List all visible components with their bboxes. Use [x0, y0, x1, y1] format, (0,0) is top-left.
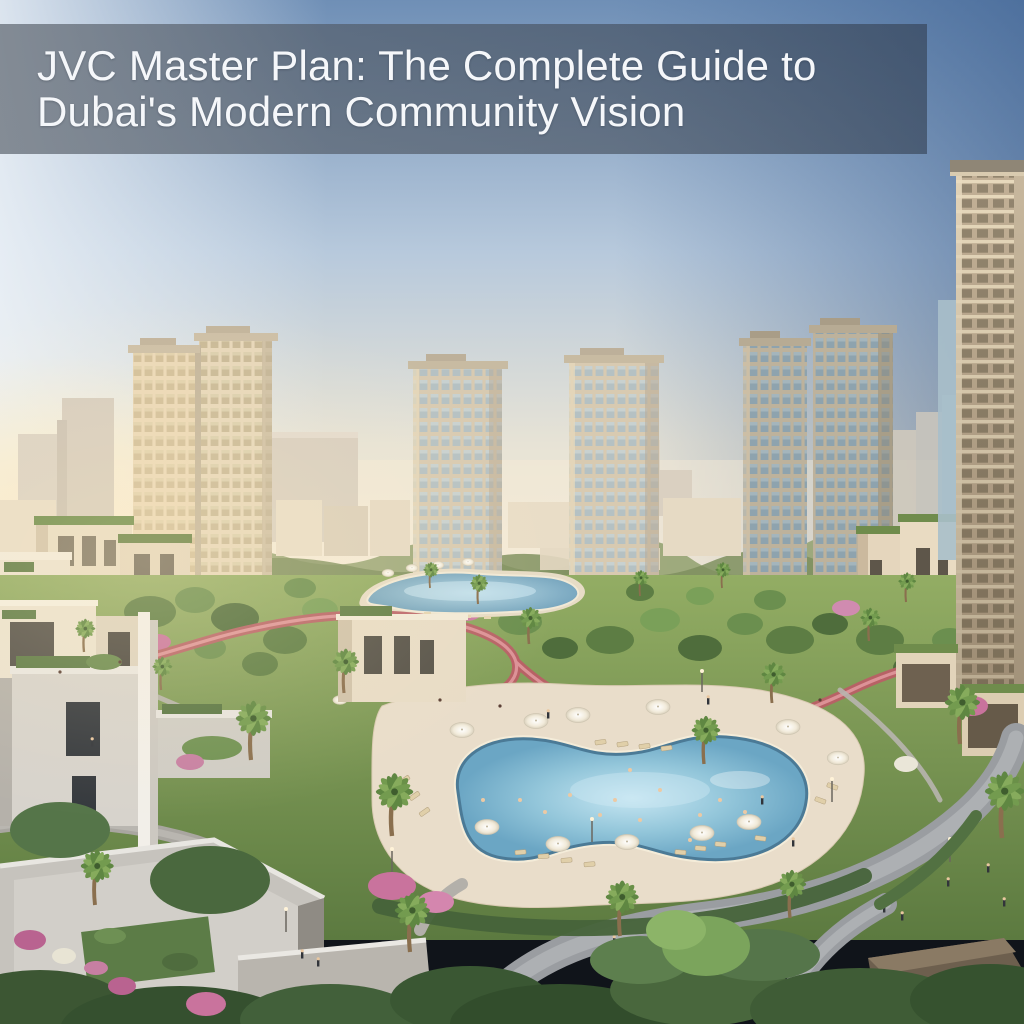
title-banner: JVC Master Plan: The Complete Guide to D…: [0, 24, 927, 154]
title-line-2: Dubai's Modern Community Vision: [37, 89, 817, 135]
title-line-1: JVC Master Plan: The Complete Guide to: [37, 43, 817, 89]
page-title: JVC Master Plan: The Complete Guide to D…: [37, 43, 817, 135]
tower-3: [564, 348, 664, 585]
jvc-hero-image: JVC Master Plan: The Complete Guide to D…: [0, 0, 1024, 1024]
